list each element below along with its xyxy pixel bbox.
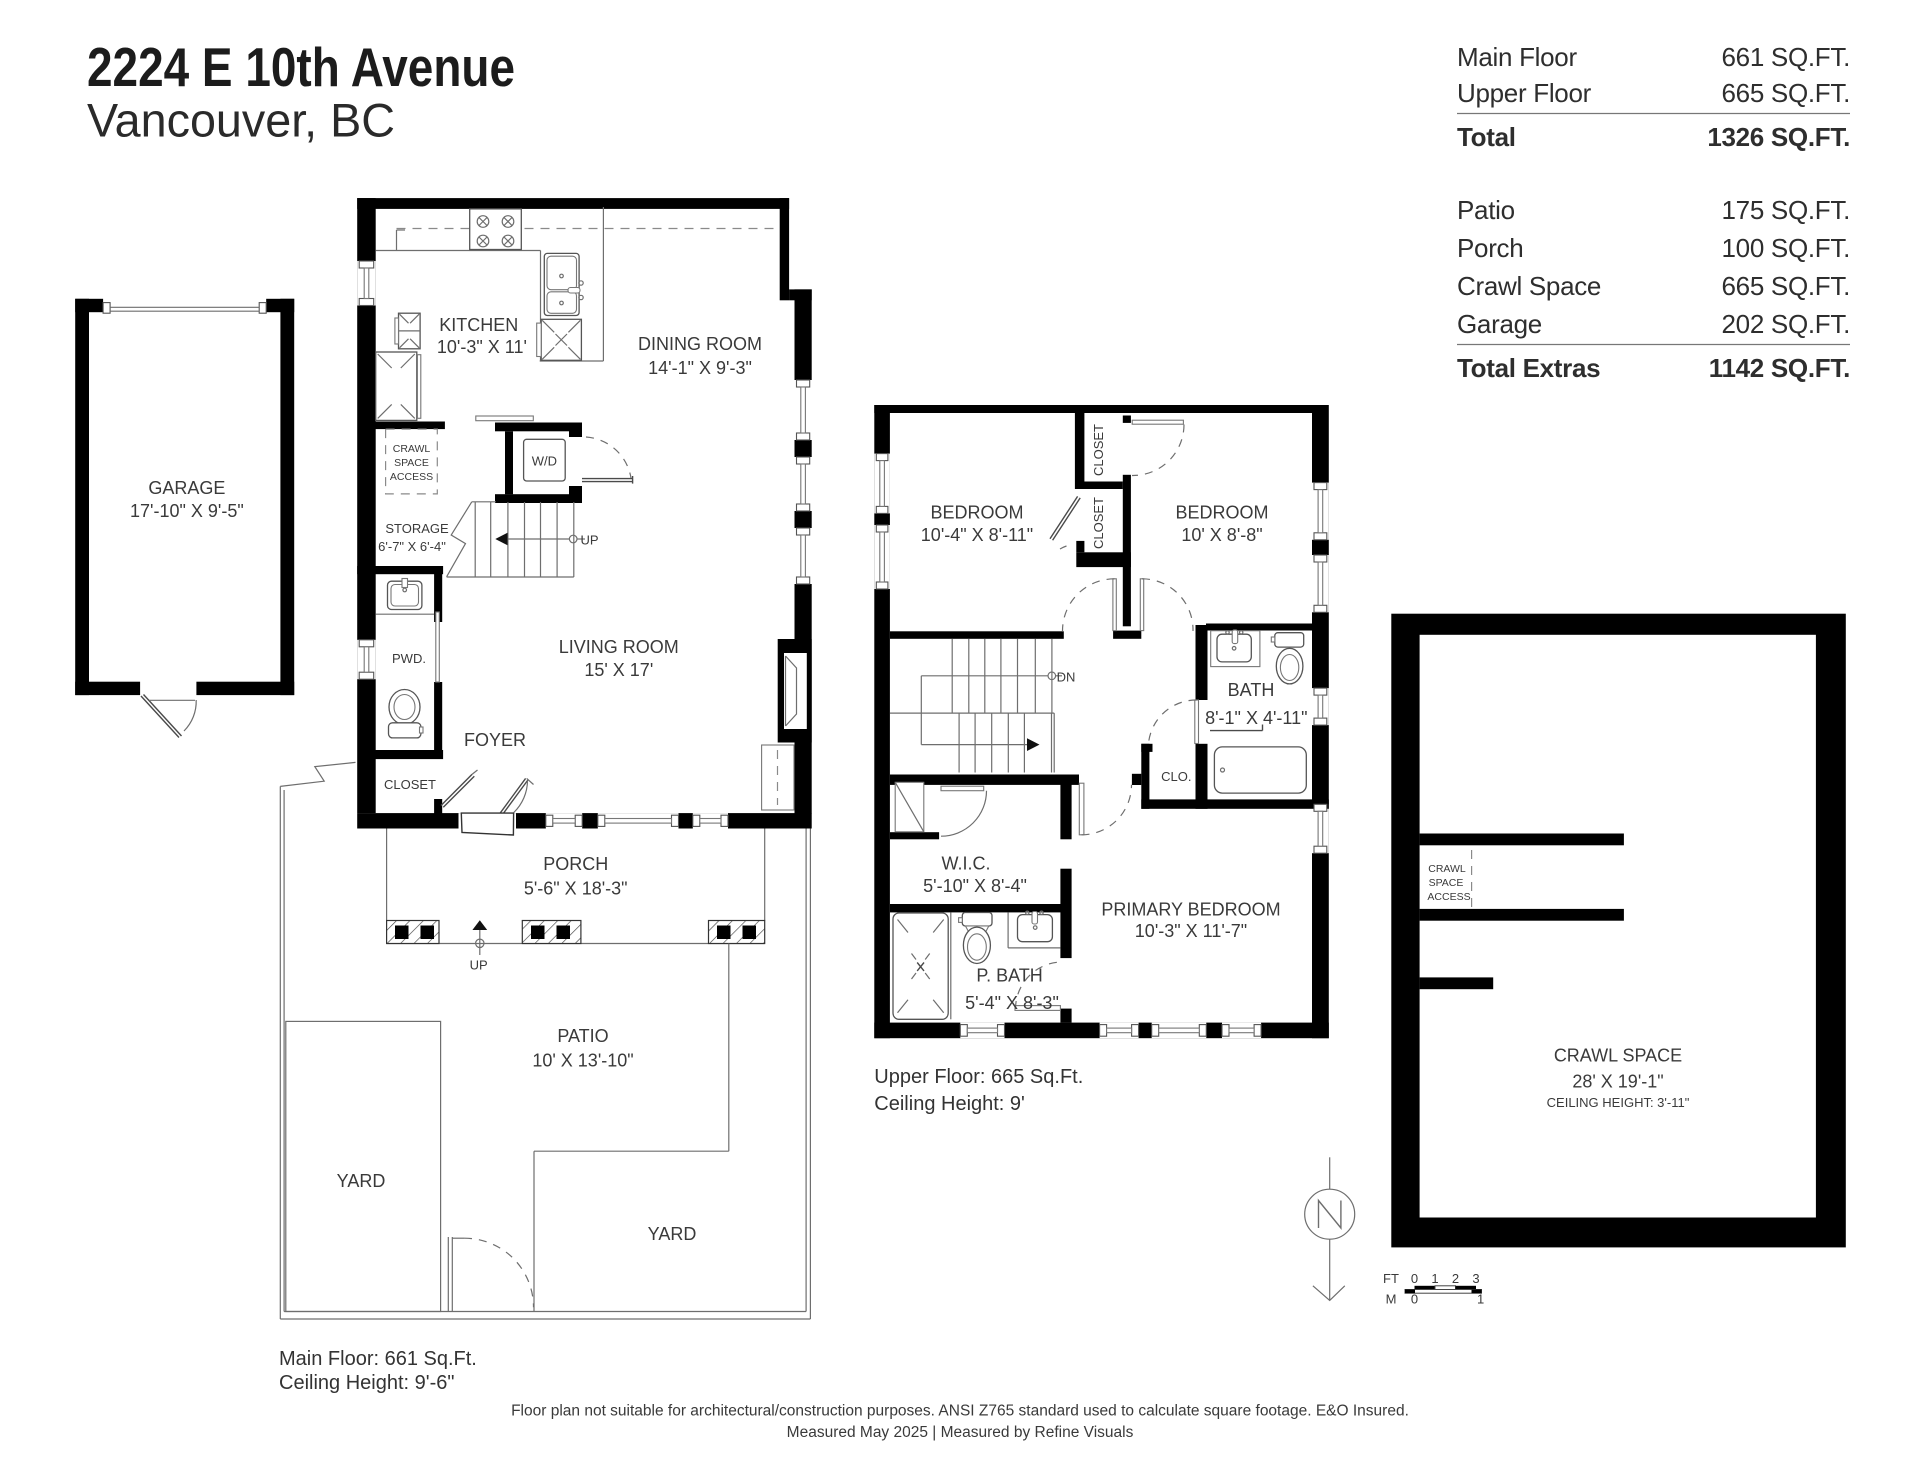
svg-text:10'-3" X 11': 10'-3" X 11' — [437, 337, 527, 357]
svg-text:CRAWL SPACE: CRAWL SPACE — [1554, 1046, 1682, 1066]
svg-text:SPACE: SPACE — [1429, 877, 1464, 889]
svg-text:UP: UP — [470, 958, 488, 973]
svg-text:661 SQ.FT.: 661 SQ.FT. — [1722, 42, 1851, 72]
svg-text:2: 2 — [1452, 1271, 1459, 1286]
svg-text:FT: FT — [1383, 1271, 1399, 1286]
svg-text:Total Extras: Total Extras — [1457, 353, 1600, 383]
svg-text:M: M — [1386, 1292, 1397, 1307]
svg-text:202 SQ.FT.: 202 SQ.FT. — [1722, 309, 1851, 339]
svg-text:100 SQ.FT.: 100 SQ.FT. — [1722, 233, 1851, 263]
svg-text:CLO.: CLO. — [1161, 769, 1191, 784]
svg-text:0: 0 — [1411, 1271, 1418, 1286]
svg-text:17'-10" X 9'-5": 17'-10" X 9'-5" — [130, 501, 244, 521]
svg-text:LIVING ROOM: LIVING ROOM — [559, 637, 679, 657]
svg-text:STORAGE: STORAGE — [385, 521, 449, 536]
svg-text:PWD.: PWD. — [392, 651, 426, 666]
svg-text:Upper Floor: Upper Floor — [1457, 78, 1592, 108]
svg-text:CLOSET: CLOSET — [384, 777, 436, 792]
svg-text:Vancouver, BC: Vancouver, BC — [87, 94, 395, 147]
svg-text:CRAWL: CRAWL — [393, 443, 431, 455]
svg-text:28' X 19'-1": 28' X 19'-1" — [1572, 1072, 1663, 1092]
svg-text:15' X 17': 15' X 17' — [584, 660, 653, 680]
svg-text:UP: UP — [580, 533, 598, 548]
svg-text:GARAGE: GARAGE — [148, 478, 225, 498]
svg-text:Total: Total — [1457, 122, 1516, 152]
svg-text:YARD: YARD — [337, 1171, 386, 1191]
svg-text:ACCESS: ACCESS — [1427, 891, 1470, 903]
svg-text:10' X 8'-8": 10' X 8'-8" — [1181, 525, 1262, 545]
svg-text:0: 0 — [1411, 1292, 1418, 1307]
svg-text:Measured May 2025 | Measured b: Measured May 2025 | Measured by Refine V… — [787, 1424, 1134, 1441]
svg-text:Porch: Porch — [1457, 233, 1523, 263]
svg-text:175 SQ.FT.: 175 SQ.FT. — [1722, 195, 1851, 225]
svg-text:CLOSET: CLOSET — [1091, 424, 1106, 476]
svg-text:BEDROOM: BEDROOM — [930, 503, 1023, 523]
svg-text:5'-6" X 18'-3": 5'-6" X 18'-3" — [524, 879, 628, 899]
svg-text:8'-1" X 4'-11": 8'-1" X 4'-11" — [1205, 708, 1307, 728]
svg-text:5'-4" X 8'-3": 5'-4" X 8'-3" — [965, 993, 1059, 1013]
svg-text:1326 SQ.FT.: 1326 SQ.FT. — [1707, 122, 1850, 152]
svg-text:Ceiling Height: 9'-6": Ceiling Height: 9'-6" — [279, 1372, 454, 1394]
svg-text:Ceiling Height: 9': Ceiling Height: 9' — [874, 1093, 1025, 1115]
svg-text:Main Floor: Main Floor — [1457, 42, 1577, 72]
svg-text:W.I.C.: W.I.C. — [942, 854, 991, 874]
svg-text:14'-1" X 9'-3": 14'-1" X 9'-3" — [648, 358, 752, 378]
svg-text:6'-7" X 6'-4": 6'-7" X 6'-4" — [378, 539, 446, 554]
svg-text:Upper Floor: 665 Sq.Ft.: Upper Floor: 665 Sq.Ft. — [874, 1066, 1083, 1088]
svg-text:W/D: W/D — [532, 454, 557, 469]
svg-text:DN: DN — [1057, 669, 1076, 684]
svg-text:1: 1 — [1431, 1271, 1438, 1286]
svg-text:BATH: BATH — [1228, 680, 1275, 700]
svg-text:CEILING HEIGHT: 3'-11": CEILING HEIGHT: 3'-11" — [1547, 1095, 1690, 1110]
svg-text:PRIMARY BEDROOM: PRIMARY BEDROOM — [1101, 900, 1280, 920]
svg-text:SPACE: SPACE — [394, 457, 429, 469]
svg-text:Crawl Space: Crawl Space — [1457, 271, 1601, 301]
svg-text:Garage: Garage — [1457, 309, 1542, 339]
svg-text:Floor plan not suitable for ar: Floor plan not suitable for architectura… — [511, 1403, 1409, 1420]
svg-text:BEDROOM: BEDROOM — [1175, 503, 1268, 523]
svg-text:PATIO: PATIO — [557, 1026, 608, 1046]
svg-text:10' X 13'-10": 10' X 13'-10" — [532, 1051, 633, 1071]
svg-text:1142 SQ.FT.: 1142 SQ.FT. — [1709, 353, 1850, 383]
svg-text:665 SQ.FT.: 665 SQ.FT. — [1722, 271, 1851, 301]
svg-text:5'-10" X 8'-4": 5'-10" X 8'-4" — [923, 876, 1027, 896]
svg-text:Patio: Patio — [1457, 195, 1515, 225]
svg-text:665 SQ.FT.: 665 SQ.FT. — [1722, 78, 1851, 108]
svg-text:CRAWL: CRAWL — [1428, 863, 1466, 875]
svg-text:ACCESS: ACCESS — [390, 471, 433, 483]
svg-text:10'-4" X 8'-11": 10'-4" X 8'-11" — [921, 525, 1033, 545]
svg-text:3: 3 — [1472, 1271, 1479, 1286]
svg-text:Main Floor: 661 Sq.Ft.: Main Floor: 661 Sq.Ft. — [279, 1348, 477, 1370]
svg-text:2224 E 10th Avenue: 2224 E 10th Avenue — [87, 36, 515, 98]
svg-text:DINING ROOM: DINING ROOM — [638, 334, 762, 354]
svg-text:FOYER: FOYER — [464, 730, 526, 750]
svg-text:CLOSET: CLOSET — [1091, 497, 1106, 549]
svg-text:KITCHEN: KITCHEN — [439, 315, 518, 335]
svg-text:1: 1 — [1477, 1292, 1484, 1307]
svg-text:PORCH: PORCH — [543, 854, 608, 874]
svg-text:10'-3" X 11'-7": 10'-3" X 11'-7" — [1135, 921, 1247, 941]
svg-text:P. BATH: P. BATH — [976, 966, 1042, 986]
svg-text:YARD: YARD — [648, 1224, 697, 1244]
